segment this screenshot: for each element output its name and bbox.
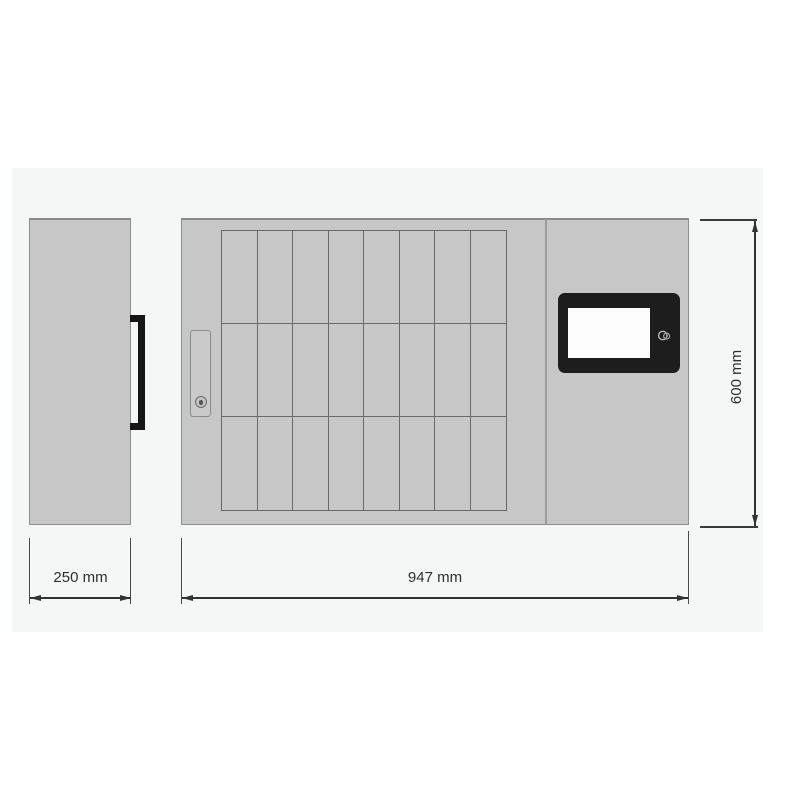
dimension-line-side-width (30, 597, 131, 599)
key-slot (471, 324, 507, 417)
key-slot (222, 231, 258, 324)
door-handle-icon (130, 423, 145, 430)
arrow-down-icon (752, 515, 758, 526)
key-slot (471, 417, 507, 510)
key-slot-grid (221, 230, 507, 511)
arrow-right-icon (120, 595, 131, 601)
key-slot (258, 231, 294, 324)
keyhole-icon (195, 396, 207, 408)
key-slot (222, 417, 258, 510)
key-slot (400, 417, 436, 510)
key-slot (471, 231, 507, 324)
dimension-label-front-width: 947 mm (182, 569, 688, 587)
key-slot (329, 417, 365, 510)
arrow-left-icon (182, 595, 193, 601)
keyhole-dot (199, 400, 203, 405)
key-slot (329, 231, 365, 324)
cabinet-side-view (29, 218, 131, 525)
dimension-label-side-width: 250 mm (30, 569, 131, 587)
key-slot (293, 231, 329, 324)
key-slot (400, 231, 436, 324)
extension-line (688, 531, 689, 604)
technical-drawing-key-cabinet: 250 mm 947 mm 600 mm (0, 0, 800, 800)
key-slot (364, 231, 400, 324)
extension-line (700, 526, 758, 528)
card-reader-icon (657, 328, 672, 343)
arrow-right-icon (677, 595, 688, 601)
dimension-line-front-width (182, 597, 688, 599)
key-slot (222, 324, 258, 417)
key-slot (364, 417, 400, 510)
key-slot (258, 324, 294, 417)
panel-divider-line (545, 219, 547, 524)
door-handle-icon (138, 315, 145, 430)
display-screen (568, 308, 650, 358)
dimension-line-front-height (754, 221, 756, 526)
key-slot (364, 324, 400, 417)
key-slot (400, 324, 436, 417)
dimension-label-front-height: 600 mm (728, 332, 746, 422)
key-slot (293, 324, 329, 417)
arrow-left-icon (30, 595, 41, 601)
key-slot (435, 231, 471, 324)
key-slot (329, 324, 365, 417)
arrow-up-icon (752, 221, 758, 232)
key-slot (293, 417, 329, 510)
key-slot (435, 417, 471, 510)
touchscreen-display (558, 293, 680, 373)
extension-line (700, 219, 757, 221)
key-slot (435, 324, 471, 417)
key-slot (258, 417, 294, 510)
